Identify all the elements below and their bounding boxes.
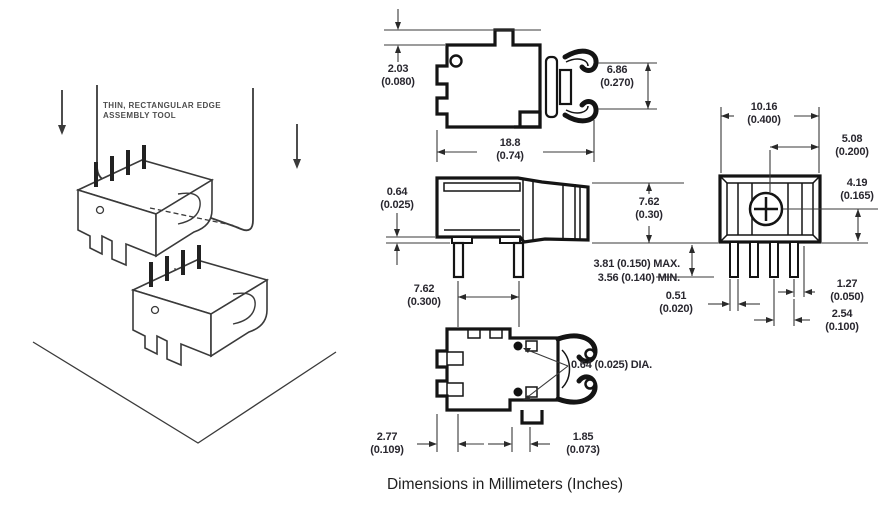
dim-body-height: 7.62 (0.30): [618, 196, 680, 222]
hole: [451, 56, 462, 67]
dim-tip-gap: 6.86 (0.270): [589, 64, 645, 90]
drawing-canvas: [0, 0, 887, 506]
dim-standoff-height: 0.64 (0.025): [366, 186, 428, 212]
arm-inner-line: [562, 350, 570, 388]
board-edge-outline: [33, 342, 336, 443]
solder-pin: [770, 242, 778, 277]
dim-pin-edge-gap: 1.27 (0.050): [816, 278, 878, 304]
insertion-arrow-icon: [58, 90, 66, 135]
dim-tab-height: 2.03 (0.080): [367, 63, 429, 89]
edge-clip-on-board: [133, 245, 267, 365]
dim-contact-height: 4.19 (0.165): [828, 177, 886, 203]
assembly-tool-label: THIN, RECTANGULAR EDGE ASSEMBLY TOOL: [103, 101, 253, 121]
dim-pin-to-contact: 1.85 (0.073): [552, 431, 614, 457]
dim-overall-width: 18.8 (0.74): [479, 137, 541, 163]
bottom-tab: [522, 410, 542, 423]
bottom-view-outline: [437, 329, 595, 423]
solder-pin: [454, 243, 463, 277]
insertion-arrow-icon: [293, 124, 301, 169]
contact-pin-dot: [514, 388, 523, 397]
contact-tip: [586, 350, 595, 359]
drawing-caption: Dimensions in Millimeters (Inches): [300, 475, 710, 494]
dim-center-to-edge: 5.08 (0.200): [822, 133, 882, 159]
dim-edge-to-pin: 2.77 (0.109): [358, 431, 416, 457]
top-view-outline: [437, 30, 596, 127]
edge-clip-datasheet-drawing: THIN, RECTANGULAR EDGE ASSEMBLY TOOL 2.0…: [0, 0, 887, 506]
dim-contact-dia: 0.64 (0.025) DIA.: [571, 359, 681, 372]
solder-pin: [514, 243, 523, 277]
solder-pin: [790, 242, 798, 277]
assembly-illustration: [33, 85, 336, 443]
edge-clip-on-tool: [78, 145, 212, 265]
dim-pin-length: 3.81 (0.150) MAX. 3.56 (0.140) MIN.: [556, 257, 680, 285]
latch-bar: [546, 57, 557, 117]
contact-tip: [586, 380, 595, 389]
dim-front-pin-width: 0.51 (0.020): [647, 290, 705, 316]
bottom-body: [437, 329, 558, 410]
solder-pin: [730, 242, 738, 277]
dim-pin-pitch: 2.54 (0.100): [811, 308, 873, 334]
latch-block: [560, 70, 571, 104]
dim-front-width: 10.16 (0.400): [734, 101, 794, 127]
side-body: [437, 178, 588, 242]
solder-pin: [750, 242, 758, 277]
dim-pin-spacing: 7.62 (0.300): [393, 283, 455, 309]
contact-pin-dot: [514, 342, 523, 351]
